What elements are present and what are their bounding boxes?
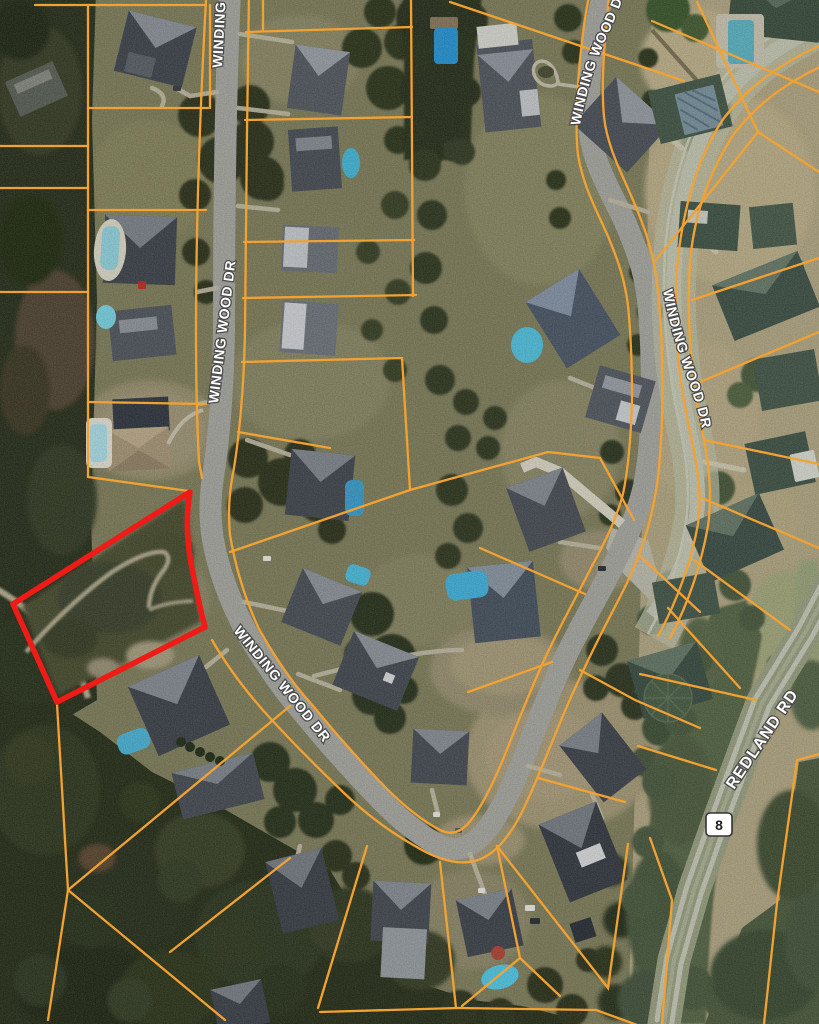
svg-text:8: 8 — [715, 817, 723, 833]
